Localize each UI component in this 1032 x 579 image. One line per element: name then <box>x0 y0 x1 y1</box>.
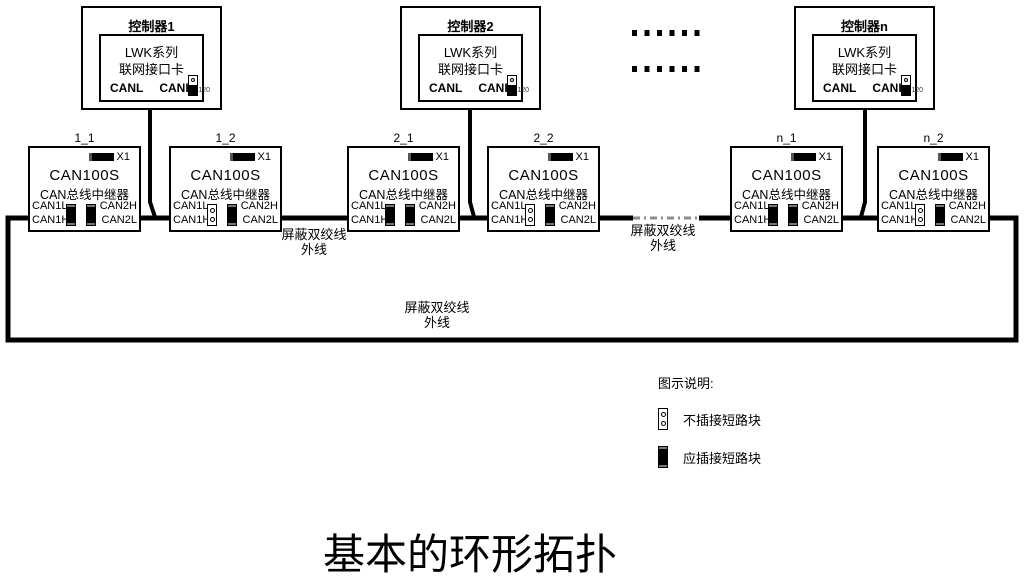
port-can2l: CAN2L <box>804 214 839 227</box>
port-canl: CANL <box>429 81 462 95</box>
card-type-label: 联网接口卡 <box>420 59 521 78</box>
lwk-interface-card: LWK系列 联网接口卡 CANL CANH 120 <box>418 34 523 102</box>
terminator-jumper-icon <box>188 75 198 96</box>
drop-controller-1 <box>150 108 155 217</box>
x1-jumper-icon <box>230 153 255 161</box>
repeater-id: n_1 <box>732 131 841 145</box>
drop-controller-2 <box>470 108 474 217</box>
right-jumper-icon <box>545 204 555 226</box>
x1-label: X1 <box>966 151 979 163</box>
repeater-1_2: 1_2 X1 CAN100S CAN总线中继器 CAN1L CAN1H CAN2… <box>169 146 282 232</box>
jumper-pin-icon <box>210 208 215 213</box>
right-jumper-icon <box>935 204 945 226</box>
jumper-pin-icon <box>661 421 666 426</box>
x1-jumper: X1 <box>89 151 130 163</box>
x1-jumper: X1 <box>548 151 589 163</box>
x1-jumper-icon <box>938 153 963 161</box>
x1-jumper: X1 <box>791 151 832 163</box>
controller-n: 控制器n LWK系列 联网接口卡 CANL CANH 120 <box>794 6 935 110</box>
card-ports: CANL CANH <box>429 81 513 95</box>
cable-label-2: 屏蔽双绞线 外线 <box>630 223 695 253</box>
legend-item-label: 不插接短路块 <box>683 410 761 429</box>
x1-jumper: X1 <box>408 151 449 163</box>
repeater-n_1: n_1 X1 CAN100S CAN总线中继器 CAN1L CAN1H CAN2… <box>730 146 843 232</box>
port-can2h: CAN2H <box>419 200 456 213</box>
port-can1h: CAN1H <box>32 214 69 227</box>
open-jumper-icon <box>658 408 668 430</box>
port-can2h: CAN2H <box>241 200 278 213</box>
lwk-interface-card: LWK系列 联网接口卡 CANL CANH 120 <box>812 34 917 102</box>
port-can1h: CAN1H <box>491 214 528 227</box>
port-can2h: CAN2H <box>802 200 839 213</box>
jumper-pin-icon <box>191 78 195 82</box>
port-can1h: CAN1H <box>734 214 771 227</box>
repeater-id: 2_1 <box>349 131 458 145</box>
jumper-pin-icon <box>210 217 215 222</box>
right-jumper-icon <box>86 204 96 226</box>
repeater-id: 1_1 <box>30 131 139 145</box>
x1-label: X1 <box>258 151 271 163</box>
jumper-pin-icon <box>528 208 533 213</box>
cable-label-line1: 屏蔽双绞线 <box>630 223 695 238</box>
card-ports: CANL CANH <box>823 81 907 95</box>
legend-item-open: 不插接短路块 <box>658 408 761 430</box>
jumper-pin-icon <box>904 78 908 82</box>
legend: 图示说明: 不插接短路块 应插接短路块 <box>658 373 761 484</box>
ring-topology-diagram: 控制器1 LWK系列 联网接口卡 CANL CANH 120 控制器2 LWK系… <box>0 0 1032 579</box>
terminator-jumper-icon <box>901 75 911 96</box>
left-jumper-icon <box>768 204 778 226</box>
cable-label-line1: 屏蔽双绞线 <box>281 227 346 242</box>
controller-1: 控制器1 LWK系列 联网接口卡 CANL CANH 120 <box>81 6 222 110</box>
port-canl: CANL <box>823 81 856 95</box>
port-can2h: CAN2H <box>949 200 986 213</box>
repeater-2_2: 2_2 X1 CAN100S CAN总线中继器 CAN1L CAN1H CAN2… <box>487 146 600 232</box>
right-jumper-icon <box>405 204 415 226</box>
jumper-cap-icon <box>189 85 197 95</box>
lwk-interface-card: LWK系列 联网接口卡 CANL CANH 120 <box>99 34 204 102</box>
x1-jumper-icon <box>408 153 433 161</box>
port-can2l: CAN2L <box>951 214 986 227</box>
right-jumper-icon <box>227 204 237 226</box>
repeater-n_2: n_2 X1 CAN100S CAN总线中继器 CAN1L CAN1H CAN2… <box>877 146 990 232</box>
jumper-cap-icon <box>902 85 910 95</box>
cable-label-line1: 屏蔽双绞线 <box>404 300 469 315</box>
x1-label: X1 <box>819 151 832 163</box>
x1-jumper: X1 <box>230 151 271 163</box>
x1-jumper-icon <box>548 153 573 161</box>
cable-label-line2: 外线 <box>281 242 346 257</box>
port-can1l: CAN1L <box>734 200 769 213</box>
repeater-id: 1_2 <box>171 131 280 145</box>
legend-title: 图示说明: <box>658 373 761 392</box>
card-type-label: 联网接口卡 <box>101 59 202 78</box>
jumper-cap-icon <box>508 85 516 95</box>
cable-label-line2: 外线 <box>404 315 469 330</box>
terminator-resistance-label: 120 <box>911 87 923 94</box>
port-can1h: CAN1H <box>173 214 210 227</box>
repeater-2_1: 2_1 X1 CAN100S CAN总线中继器 CAN1L CAN1H CAN2… <box>347 146 460 232</box>
port-can2l: CAN2L <box>102 214 137 227</box>
repeater-id: n_2 <box>879 131 988 145</box>
left-jumper-icon <box>385 204 395 226</box>
repeater-model: CAN100S <box>171 167 280 184</box>
ring-cable-line <box>8 218 1016 340</box>
left-jumper-icon <box>207 204 217 226</box>
repeater-model: CAN100S <box>879 167 988 184</box>
left-jumper-icon <box>525 204 535 226</box>
controller-name: 控制器2 <box>402 16 539 35</box>
port-canl: CANL <box>110 81 143 95</box>
x1-jumper-icon <box>89 153 114 161</box>
cable-label-1: 屏蔽双绞线 外线 <box>281 227 346 257</box>
ellipsis-dots-top <box>632 30 702 36</box>
repeater-model: CAN100S <box>732 167 841 184</box>
diagram-title: 基本的环形拓扑 <box>323 521 617 579</box>
terminator-resistance-label: 120 <box>198 87 210 94</box>
legend-item-label: 应插接短路块 <box>683 448 761 467</box>
port-can1h: CAN1H <box>881 214 918 227</box>
right-jumper-icon <box>788 204 798 226</box>
jumper-pin-icon <box>661 412 666 417</box>
x1-label: X1 <box>436 151 449 163</box>
terminator-jumper-icon <box>507 75 517 96</box>
port-can1l: CAN1L <box>351 200 386 213</box>
x1-jumper-icon <box>791 153 816 161</box>
legend-item-inserted: 应插接短路块 <box>658 446 761 468</box>
card-ports: CANL CANH <box>110 81 194 95</box>
port-can2l: CAN2L <box>421 214 456 227</box>
card-type-label: 联网接口卡 <box>814 59 915 78</box>
repeater-1_1: 1_1 X1 CAN100S CAN总线中继器 CAN1L CAN1H CAN2… <box>28 146 141 232</box>
repeater-model: CAN100S <box>30 167 139 184</box>
jumper-pin-icon <box>510 78 514 82</box>
repeater-model: CAN100S <box>489 167 598 184</box>
left-jumper-icon <box>915 204 925 226</box>
x1-label: X1 <box>117 151 130 163</box>
controller-name: 控制器1 <box>83 16 220 35</box>
port-can2h: CAN2H <box>100 200 137 213</box>
port-can1l: CAN1L <box>32 200 67 213</box>
terminator-resistance-label: 120 <box>517 87 529 94</box>
controller-name: 控制器n <box>796 16 933 35</box>
port-can1l: CAN1L <box>491 200 526 213</box>
inserted-jumper-icon <box>658 446 668 468</box>
x1-label: X1 <box>576 151 589 163</box>
drop-controller-n <box>861 108 865 217</box>
jumper-pin-icon <box>918 208 923 213</box>
repeater-model: CAN100S <box>349 167 458 184</box>
port-can1h: CAN1H <box>351 214 388 227</box>
jumper-pin-icon <box>918 217 923 222</box>
ellipsis-dots-bottom <box>632 66 702 72</box>
port-can1l: CAN1L <box>173 200 208 213</box>
controller-2: 控制器2 LWK系列 联网接口卡 CANL CANH 120 <box>400 6 541 110</box>
port-can1l: CAN1L <box>881 200 916 213</box>
port-can2l: CAN2L <box>243 214 278 227</box>
left-jumper-icon <box>66 204 76 226</box>
port-can2l: CAN2L <box>561 214 596 227</box>
jumper-pin-icon <box>528 217 533 222</box>
x1-jumper: X1 <box>938 151 979 163</box>
cable-label-3: 屏蔽双绞线 外线 <box>404 300 469 330</box>
repeater-id: 2_2 <box>489 131 598 145</box>
port-can2h: CAN2H <box>559 200 596 213</box>
cable-label-line2: 外线 <box>630 238 695 253</box>
